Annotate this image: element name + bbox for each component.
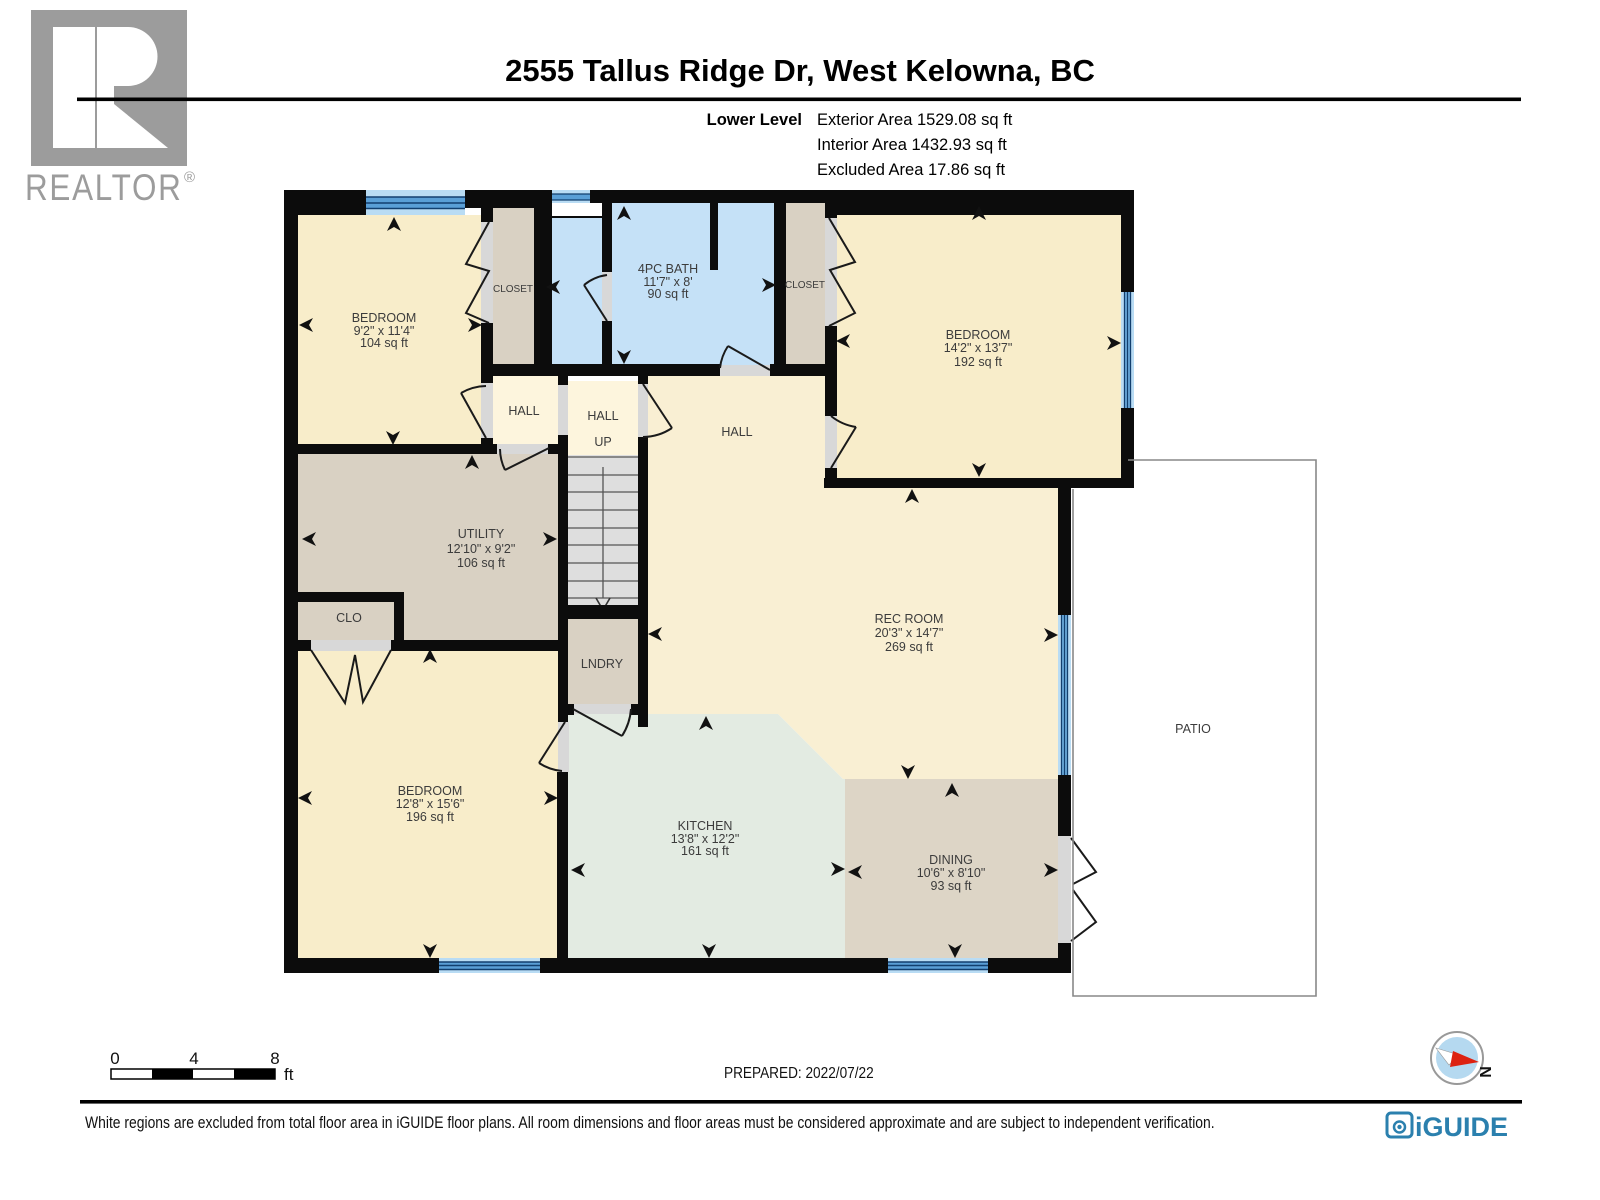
svg-text:UP: UP — [594, 435, 611, 449]
svg-text:90 sq ft: 90 sq ft — [648, 287, 690, 301]
svg-text:DINING: DINING — [929, 853, 973, 867]
svg-text:196 sq ft: 196 sq ft — [406, 810, 454, 824]
svg-text:4: 4 — [189, 1049, 198, 1068]
svg-text:iGUIDE: iGUIDE — [1415, 1112, 1508, 1142]
svg-text:CLOSET: CLOSET — [785, 280, 825, 291]
svg-text:8: 8 — [270, 1049, 279, 1068]
svg-text:269 sq ft: 269 sq ft — [885, 640, 933, 654]
svg-text:106 sq ft: 106 sq ft — [457, 556, 505, 570]
svg-text:Interior Area 1432.93 sq ft: Interior Area 1432.93 sq ft — [817, 136, 1007, 154]
svg-text:White regions are excluded fro: White regions are excluded from total fl… — [85, 1114, 1215, 1132]
svg-text:KITCHEN: KITCHEN — [678, 819, 733, 833]
svg-text:REALTOR: REALTOR — [25, 168, 183, 209]
svg-text:HALL: HALL — [508, 404, 539, 418]
svg-text:Excluded Area 17.86 sq ft: Excluded Area 17.86 sq ft — [817, 161, 1005, 179]
svg-text:192 sq ft: 192 sq ft — [954, 355, 1002, 369]
svg-text:20'3" x 14'7": 20'3" x 14'7" — [875, 626, 944, 640]
svg-text:BEDROOM: BEDROOM — [352, 311, 417, 325]
svg-text:N: N — [1478, 1066, 1495, 1078]
svg-text:Lower Level: Lower Level — [707, 111, 802, 129]
svg-text:BEDROOM: BEDROOM — [398, 784, 463, 798]
svg-text:CLOSET: CLOSET — [493, 284, 533, 295]
svg-text:4PC BATH: 4PC BATH — [638, 262, 698, 276]
svg-text:0: 0 — [110, 1049, 119, 1068]
svg-text:104 sq ft: 104 sq ft — [360, 336, 408, 350]
svg-text:14'2" x 13'7": 14'2" x 13'7" — [944, 341, 1013, 355]
svg-text:HALL: HALL — [721, 425, 752, 439]
svg-text:12'8" x 15'6": 12'8" x 15'6" — [396, 797, 465, 811]
svg-text:12'10" x 9'2": 12'10" x 9'2" — [447, 542, 516, 556]
svg-text:LNDRY: LNDRY — [581, 657, 624, 671]
svg-text:CLO: CLO — [336, 611, 362, 625]
svg-text:®: ® — [184, 169, 195, 186]
svg-text:HALL: HALL — [587, 409, 618, 423]
svg-text:UTILITY: UTILITY — [458, 527, 505, 541]
svg-text:PREPARED: 2022/07/22: PREPARED: 2022/07/22 — [724, 1065, 874, 1082]
svg-text:10'6" x 8'10": 10'6" x 8'10" — [917, 866, 986, 880]
svg-text:Exterior Area 1529.08 sq ft: Exterior Area 1529.08 sq ft — [817, 111, 1013, 129]
svg-text:PATIO: PATIO — [1175, 722, 1211, 736]
svg-text:2555 Tallus Ridge Dr, West Kel: 2555 Tallus Ridge Dr, West Kelowna, BC — [505, 53, 1095, 88]
svg-text:BEDROOM: BEDROOM — [946, 328, 1011, 342]
svg-text:REC ROOM: REC ROOM — [875, 612, 944, 626]
svg-text:93 sq ft: 93 sq ft — [931, 879, 973, 893]
svg-text:161 sq ft: 161 sq ft — [681, 844, 729, 858]
svg-text:ft: ft — [284, 1065, 294, 1084]
